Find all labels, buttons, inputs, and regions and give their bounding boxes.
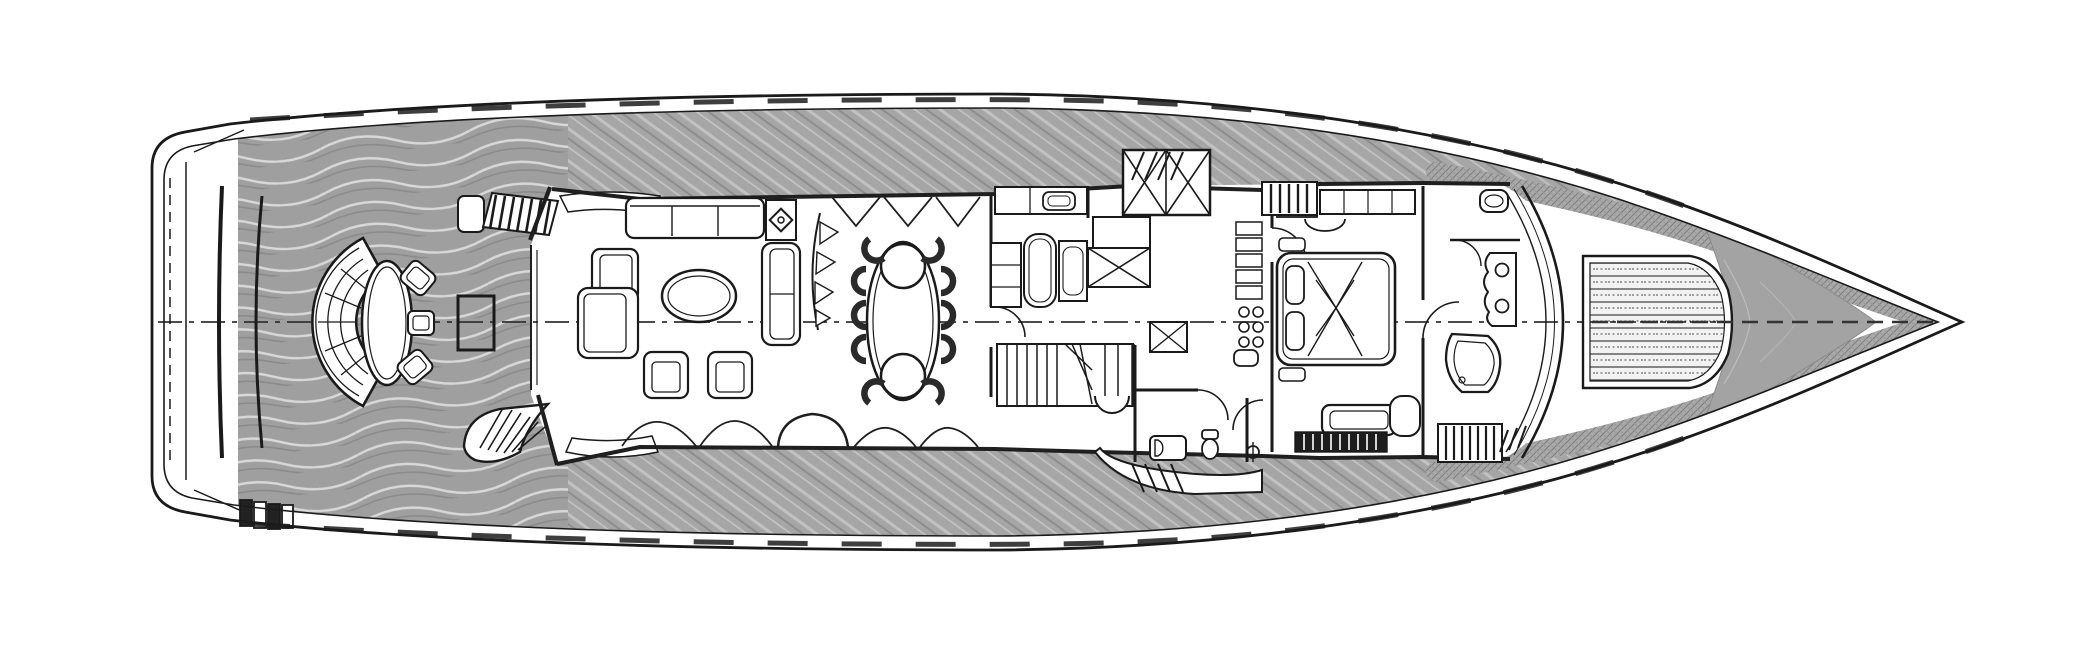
nightstand-starboard — [1279, 238, 1305, 251]
coffee-table — [662, 270, 736, 322]
salon-sofa — [626, 198, 764, 238]
yacht-floor-plan-canvas — [0, 0, 2097, 672]
master-toilet — [1480, 190, 1508, 212]
swim-platform-surface — [146, 118, 240, 548]
dining-end-chair-fwd — [881, 244, 925, 288]
pillow-2 — [1286, 312, 1304, 350]
toilet-bowl — [1202, 439, 1218, 459]
pillow-1 — [1286, 266, 1304, 304]
hatch-box-small-icon — [1150, 322, 1187, 352]
pantry-stool — [1234, 350, 1258, 366]
yacht-main-deck-plan — [0, 0, 2097, 672]
dining-end-chair-aft — [881, 354, 925, 398]
hatch-box-mid-icon — [1088, 248, 1150, 287]
stairwell — [997, 344, 1133, 413]
l-sofa-long — [578, 288, 638, 358]
aft-stair-starboard — [458, 193, 558, 235]
fridge — [991, 243, 1021, 307]
dumbwaiter-cabinet — [1093, 217, 1150, 248]
tv-bench — [1322, 405, 1396, 435]
nightstand-port — [1279, 368, 1305, 381]
louver-stairs — [1295, 432, 1387, 452]
corner-seat — [1390, 396, 1420, 436]
toilet-tank — [1202, 430, 1218, 439]
side-deck-step-block — [1262, 182, 1317, 215]
